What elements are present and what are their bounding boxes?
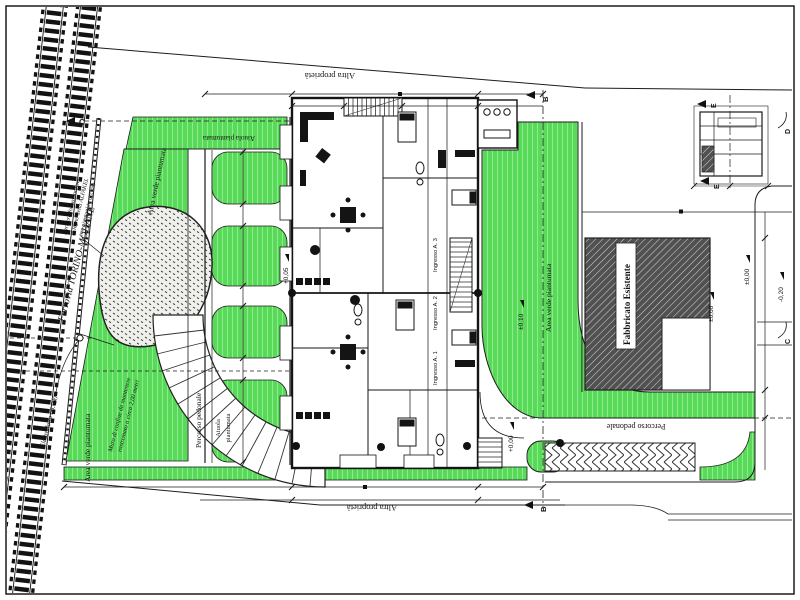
svg-text:+0,00: +0,00 xyxy=(508,435,515,452)
svg-text:±0,10: ±0,10 xyxy=(518,313,525,330)
powerline-pylon xyxy=(77,335,83,341)
parking-island xyxy=(212,306,287,358)
other-property-bottom: Altra proprietà xyxy=(347,503,397,513)
section-b-bottom: B xyxy=(539,506,548,512)
flowerbed-label-top: Aiuola piantumata xyxy=(202,134,255,142)
other-property-top: Altra proprietà xyxy=(305,71,355,81)
svg-text:-0,20: -0,20 xyxy=(778,287,785,302)
flowerbed-word2: piantumata xyxy=(225,413,232,442)
stair-bottom xyxy=(478,438,502,468)
green-label-bottomleft: Area verde piantumata xyxy=(83,413,92,482)
svg-text:±0,00: ±0,00 xyxy=(708,305,715,322)
section-e-bottom: E xyxy=(714,184,721,189)
entrance-label-a2: Ingresso A. 2 xyxy=(433,296,439,330)
site-plan-page: Fabbricato Esistente xyxy=(0,0,800,600)
svg-text:±0,00: ±0,00 xyxy=(744,268,751,285)
existing-building: Fabbricato Esistente xyxy=(585,238,710,390)
building-annex xyxy=(478,100,517,148)
site-plan-svg: Fabbricato Esistente xyxy=(0,0,800,600)
paved-ramp xyxy=(545,443,695,471)
section-e-top: E xyxy=(711,103,718,108)
section-c-topleft: C xyxy=(79,118,85,127)
parking-island xyxy=(212,152,287,204)
flowerbed-word1: Aiuola xyxy=(215,419,222,437)
parking-island xyxy=(212,226,287,286)
entrance-label-a3: Ingresso A. 3 xyxy=(433,238,439,272)
svg-text:+0,05: +0,05 xyxy=(283,267,290,284)
existing-building-label: Fabbricato Esistente xyxy=(622,264,632,345)
section-d-right: D xyxy=(785,129,792,134)
green-top-band xyxy=(126,117,287,149)
entrance-label-a1: Ingresso A. 1 xyxy=(433,351,439,385)
section-b-top: B xyxy=(541,96,550,102)
footpath-label-right: Percorso pedonale xyxy=(606,422,665,431)
footpath-label-left: Percorso pedonale xyxy=(194,392,203,448)
green-label-right: Area verde piantumata xyxy=(544,263,553,332)
section-c-right: C xyxy=(785,339,792,344)
